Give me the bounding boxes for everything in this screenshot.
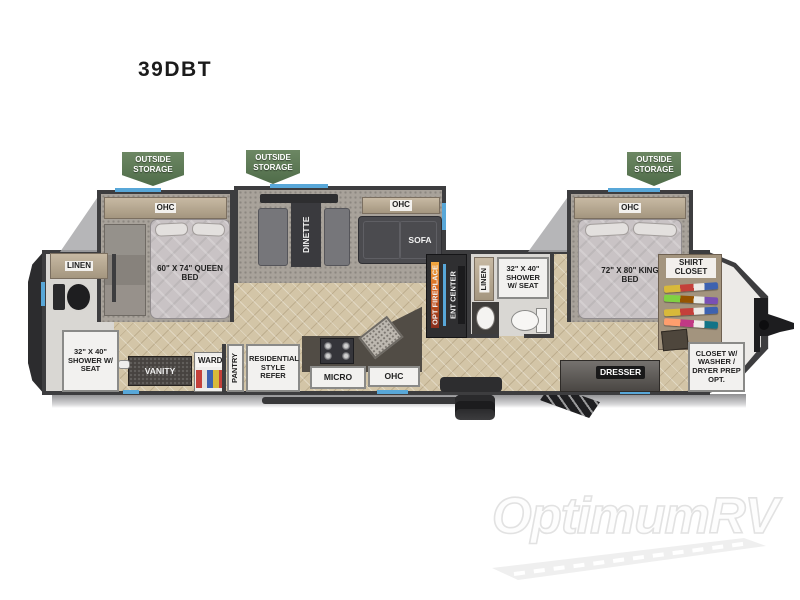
pillow [633, 222, 678, 237]
toilet-rear-bowl [65, 282, 92, 312]
linen-cabinet-mid: LINEN [474, 257, 494, 301]
bath-sink-mid [476, 306, 495, 330]
shower-mid-label: 32" X 40" SHOWER W/ SEAT [501, 265, 545, 291]
watermark-logo: OptimumRV [492, 486, 787, 576]
wardrobe-clothes [196, 370, 223, 388]
vanity-sink [118, 360, 130, 369]
dinette-label: DINETTE [291, 203, 321, 267]
pillow [155, 222, 189, 237]
window-accent [115, 188, 161, 192]
wd-closet-label: CLOSET W/ WASHER / DRYER PREP OPT. [692, 350, 742, 385]
interior-wall [467, 254, 471, 338]
linen-cabinet-rear: LINEN [50, 253, 108, 279]
ohc-kitchen-label: OHC [385, 372, 404, 382]
window-accent [377, 390, 408, 394]
sofa-ohc-label: OHC [390, 200, 412, 211]
tv-screen [458, 266, 465, 324]
entry-mat [440, 377, 502, 392]
ohc-cabinet-front-bedroom: OHC [574, 197, 686, 219]
shower-rear: 32" X 40" SHOWER W/ SEAT [62, 330, 119, 392]
pantry-cabinet: PANTRY [227, 344, 244, 392]
slide-shadow [60, 198, 97, 252]
slide-shadow [528, 198, 567, 252]
toilet-rear [53, 284, 65, 310]
shower-mid: 32" X 40" SHOWER W/ SEAT [497, 257, 549, 299]
closet-hamper [661, 329, 689, 352]
king-bed-label-text: 72" X 80" KING BED [601, 266, 658, 284]
refrigerator: RESIDENTIAL STYLE REFER [246, 344, 300, 392]
micro-label: MICRO [324, 373, 352, 383]
window-accent [442, 203, 446, 230]
microwave-cabinet: MICRO [310, 366, 366, 389]
linen-mid-label: LINEN [479, 266, 489, 293]
storage-tag-label: OUTSIDE STORAGE [131, 155, 175, 174]
window-accent [41, 282, 45, 306]
storage-tag-mid: OUTSIDE STORAGE [246, 150, 300, 184]
interior-wall [222, 344, 226, 393]
tv-accent [443, 264, 446, 326]
shower-rear-label: 32" X 40" SHOWER W/ SEAT [68, 348, 114, 374]
window-accent [123, 390, 139, 394]
wardrobe-label: WARD [196, 356, 223, 367]
interior-wall [112, 254, 116, 302]
washer-dryer-closet: CLOSET W/ WASHER / DRYER PREP OPT. [688, 342, 745, 392]
entry-steps-main [455, 395, 495, 420]
dresser-label: DRESSER [596, 366, 645, 379]
storage-tag-label: OUTSIDE STORAGE [251, 153, 295, 172]
sofa-label: SOFA [399, 235, 441, 245]
stove-cooktop [320, 338, 354, 364]
bedroom-cabinet [104, 224, 146, 316]
window-accent [270, 184, 328, 188]
opt-fireplace-label: OPT FIREPLACE [429, 258, 441, 332]
dinette-overhead [260, 194, 338, 203]
interior-wall [524, 334, 554, 338]
ohc-kitchen: OHC [368, 366, 420, 387]
pantry-label: PANTRY [231, 353, 240, 383]
queen-bed-label: 60" X 74" QUEEN BED [152, 264, 228, 284]
floorplan-canvas: 39DBT OUTSIDE STORAGE OUTSIDE STORAGE OU… [0, 0, 800, 600]
pillow [585, 222, 630, 237]
dinette-table: DINETTE [291, 203, 321, 267]
ohc-front-label: OHC [619, 203, 641, 214]
pillow [192, 222, 226, 237]
dinette-bench-right [324, 208, 350, 266]
linen-label: LINEN [65, 261, 93, 272]
dinette-bench-left [258, 208, 288, 266]
undercarriage-bar [262, 397, 462, 404]
ohc-cabinet-rear-bedroom: OHC [104, 197, 227, 219]
storage-tag-rear: OUTSIDE STORAGE [122, 152, 184, 186]
storage-tag-label: OUTSIDE STORAGE [632, 155, 676, 174]
shirt-closet-label: SHIRT CLOSET [666, 258, 716, 278]
ohc-label: OHC [155, 203, 177, 214]
interior-wall [550, 254, 554, 338]
model-number: 39DBT [138, 58, 212, 82]
vanity-label: VANITY [134, 366, 186, 376]
interior-wall [467, 334, 499, 338]
window-accent [608, 188, 660, 192]
queen-bed-label-text: 60" X 74" QUEEN BED [157, 264, 223, 282]
hitch-icon [752, 296, 798, 354]
king-bed-label: 72" X 80" KING BED [592, 266, 668, 286]
storage-tag-front: OUTSIDE STORAGE [627, 152, 681, 186]
refer-label: RESIDENTIAL STYLE REFER [249, 355, 297, 381]
toilet-mid-bowl [511, 310, 539, 331]
road-graphic [492, 536, 774, 580]
sofa-ohc-cabinet: OHC [362, 197, 440, 214]
